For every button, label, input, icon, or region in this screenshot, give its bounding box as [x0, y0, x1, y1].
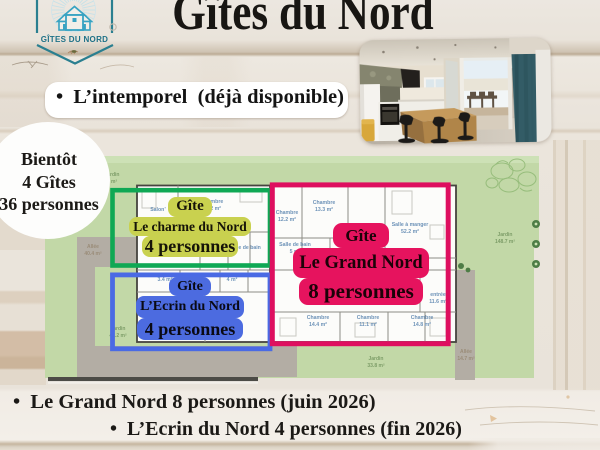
svg-text:Jardin: Jardin	[497, 232, 512, 238]
svg-text:14.7 m²: 14.7 m²	[457, 356, 475, 362]
svg-text:Chambre: Chambre	[411, 315, 434, 321]
svg-text:33.8 m²: 33.8 m²	[367, 363, 385, 369]
svg-text:Chambre: Chambre	[357, 315, 380, 321]
svg-text:148.7 m²: 148.7 m²	[495, 239, 515, 245]
svg-text:11.1 m²: 11.1 m²	[359, 322, 377, 328]
svg-text:Allée: Allée	[460, 349, 472, 355]
svg-text:14.8 m²: 14.8 m²	[413, 322, 431, 328]
svg-text:Jardin: Jardin	[368, 356, 383, 362]
